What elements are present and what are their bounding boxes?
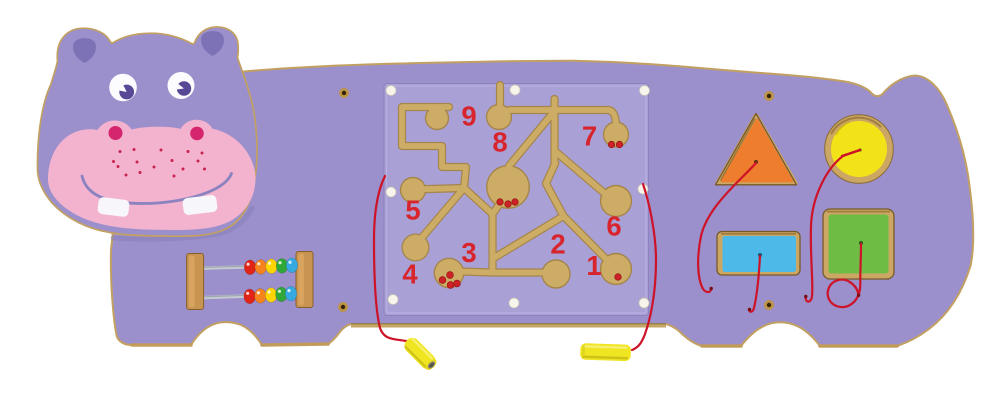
svg-text:8: 8 (492, 127, 507, 158)
svg-text:3: 3 (461, 237, 476, 268)
svg-text:6: 6 (606, 211, 621, 242)
svg-text:9: 9 (461, 101, 476, 132)
svg-text:4: 4 (402, 259, 418, 290)
svg-text:5: 5 (405, 195, 420, 226)
svg-text:1: 1 (586, 250, 601, 281)
svg-text:7: 7 (582, 121, 597, 152)
svg-text:2: 2 (550, 229, 565, 260)
